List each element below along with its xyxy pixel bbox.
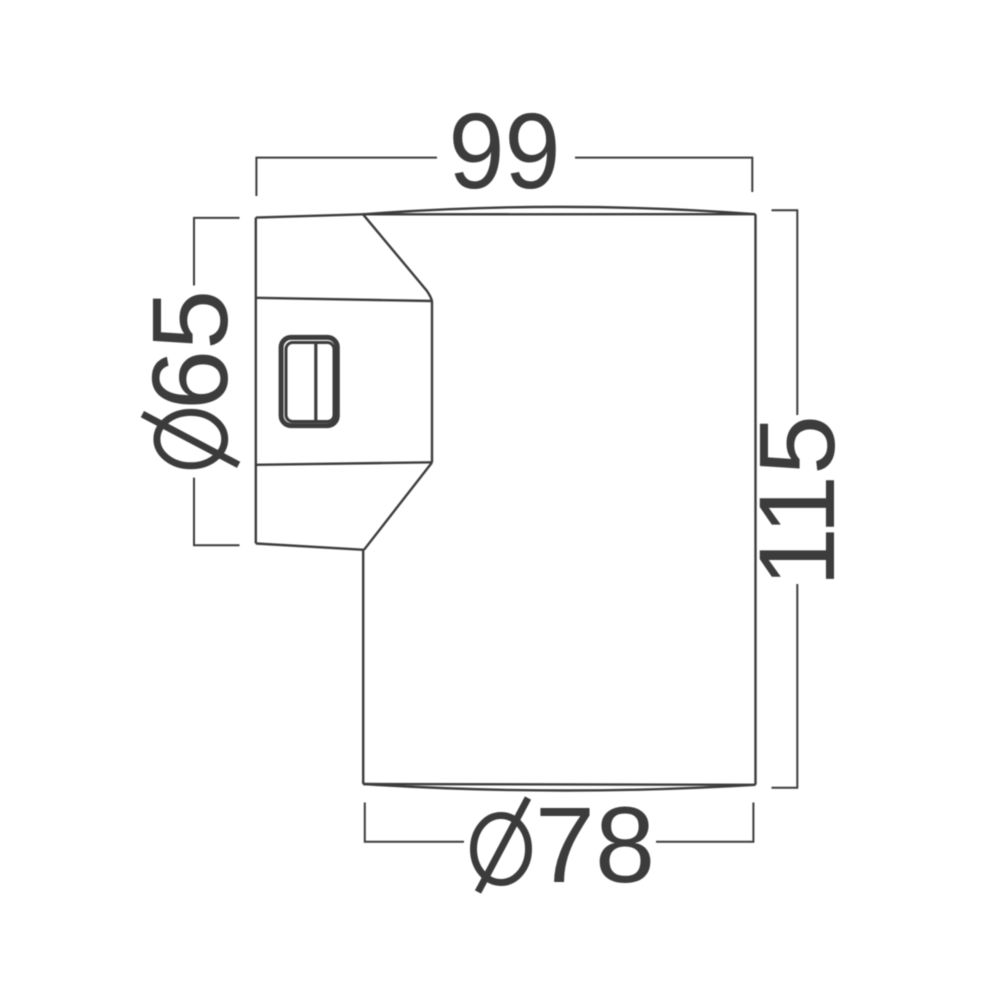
svg-text:78: 78 (535, 784, 655, 905)
svg-text:115: 115 (736, 415, 857, 587)
svg-text:65: 65 (129, 290, 250, 410)
svg-text:99: 99 (449, 90, 561, 211)
